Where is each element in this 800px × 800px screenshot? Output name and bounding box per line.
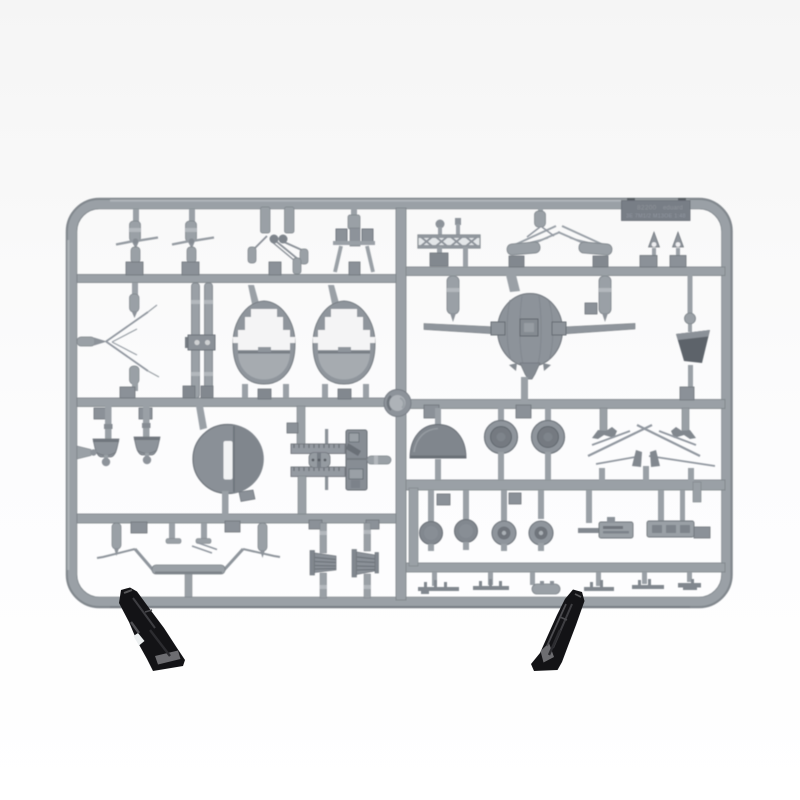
svg-text:eduard: eduard: [663, 206, 683, 212]
svg-text:82200: 82200: [637, 205, 657, 212]
svg-text:3Е 7М1/2 М13ОЕ 1:48: 3Е 7М1/2 М13ОЕ 1:48: [626, 214, 686, 220]
